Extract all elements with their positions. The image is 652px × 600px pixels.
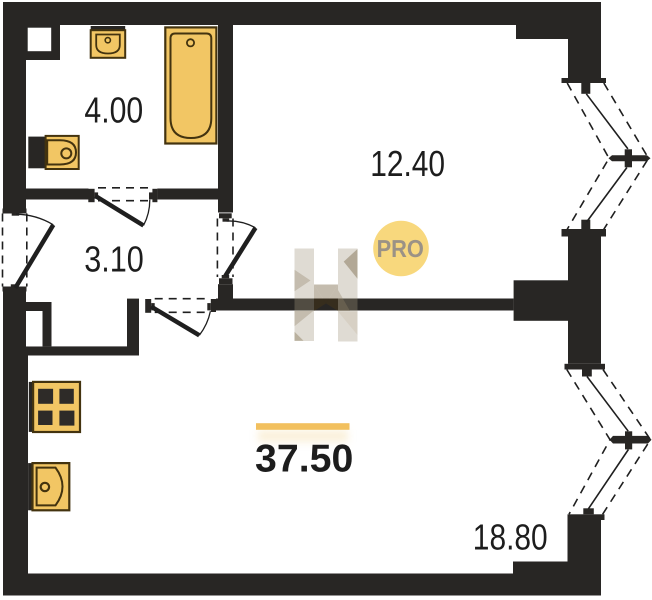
svg-text:18.80: 18.80 bbox=[473, 516, 548, 557]
svg-text:37.50: 37.50 bbox=[255, 438, 353, 481]
svg-text:PRO: PRO bbox=[377, 236, 424, 263]
svg-text:12.40: 12.40 bbox=[370, 143, 445, 184]
svg-text:3.10: 3.10 bbox=[84, 238, 144, 279]
svg-text:4.00: 4.00 bbox=[84, 90, 143, 131]
